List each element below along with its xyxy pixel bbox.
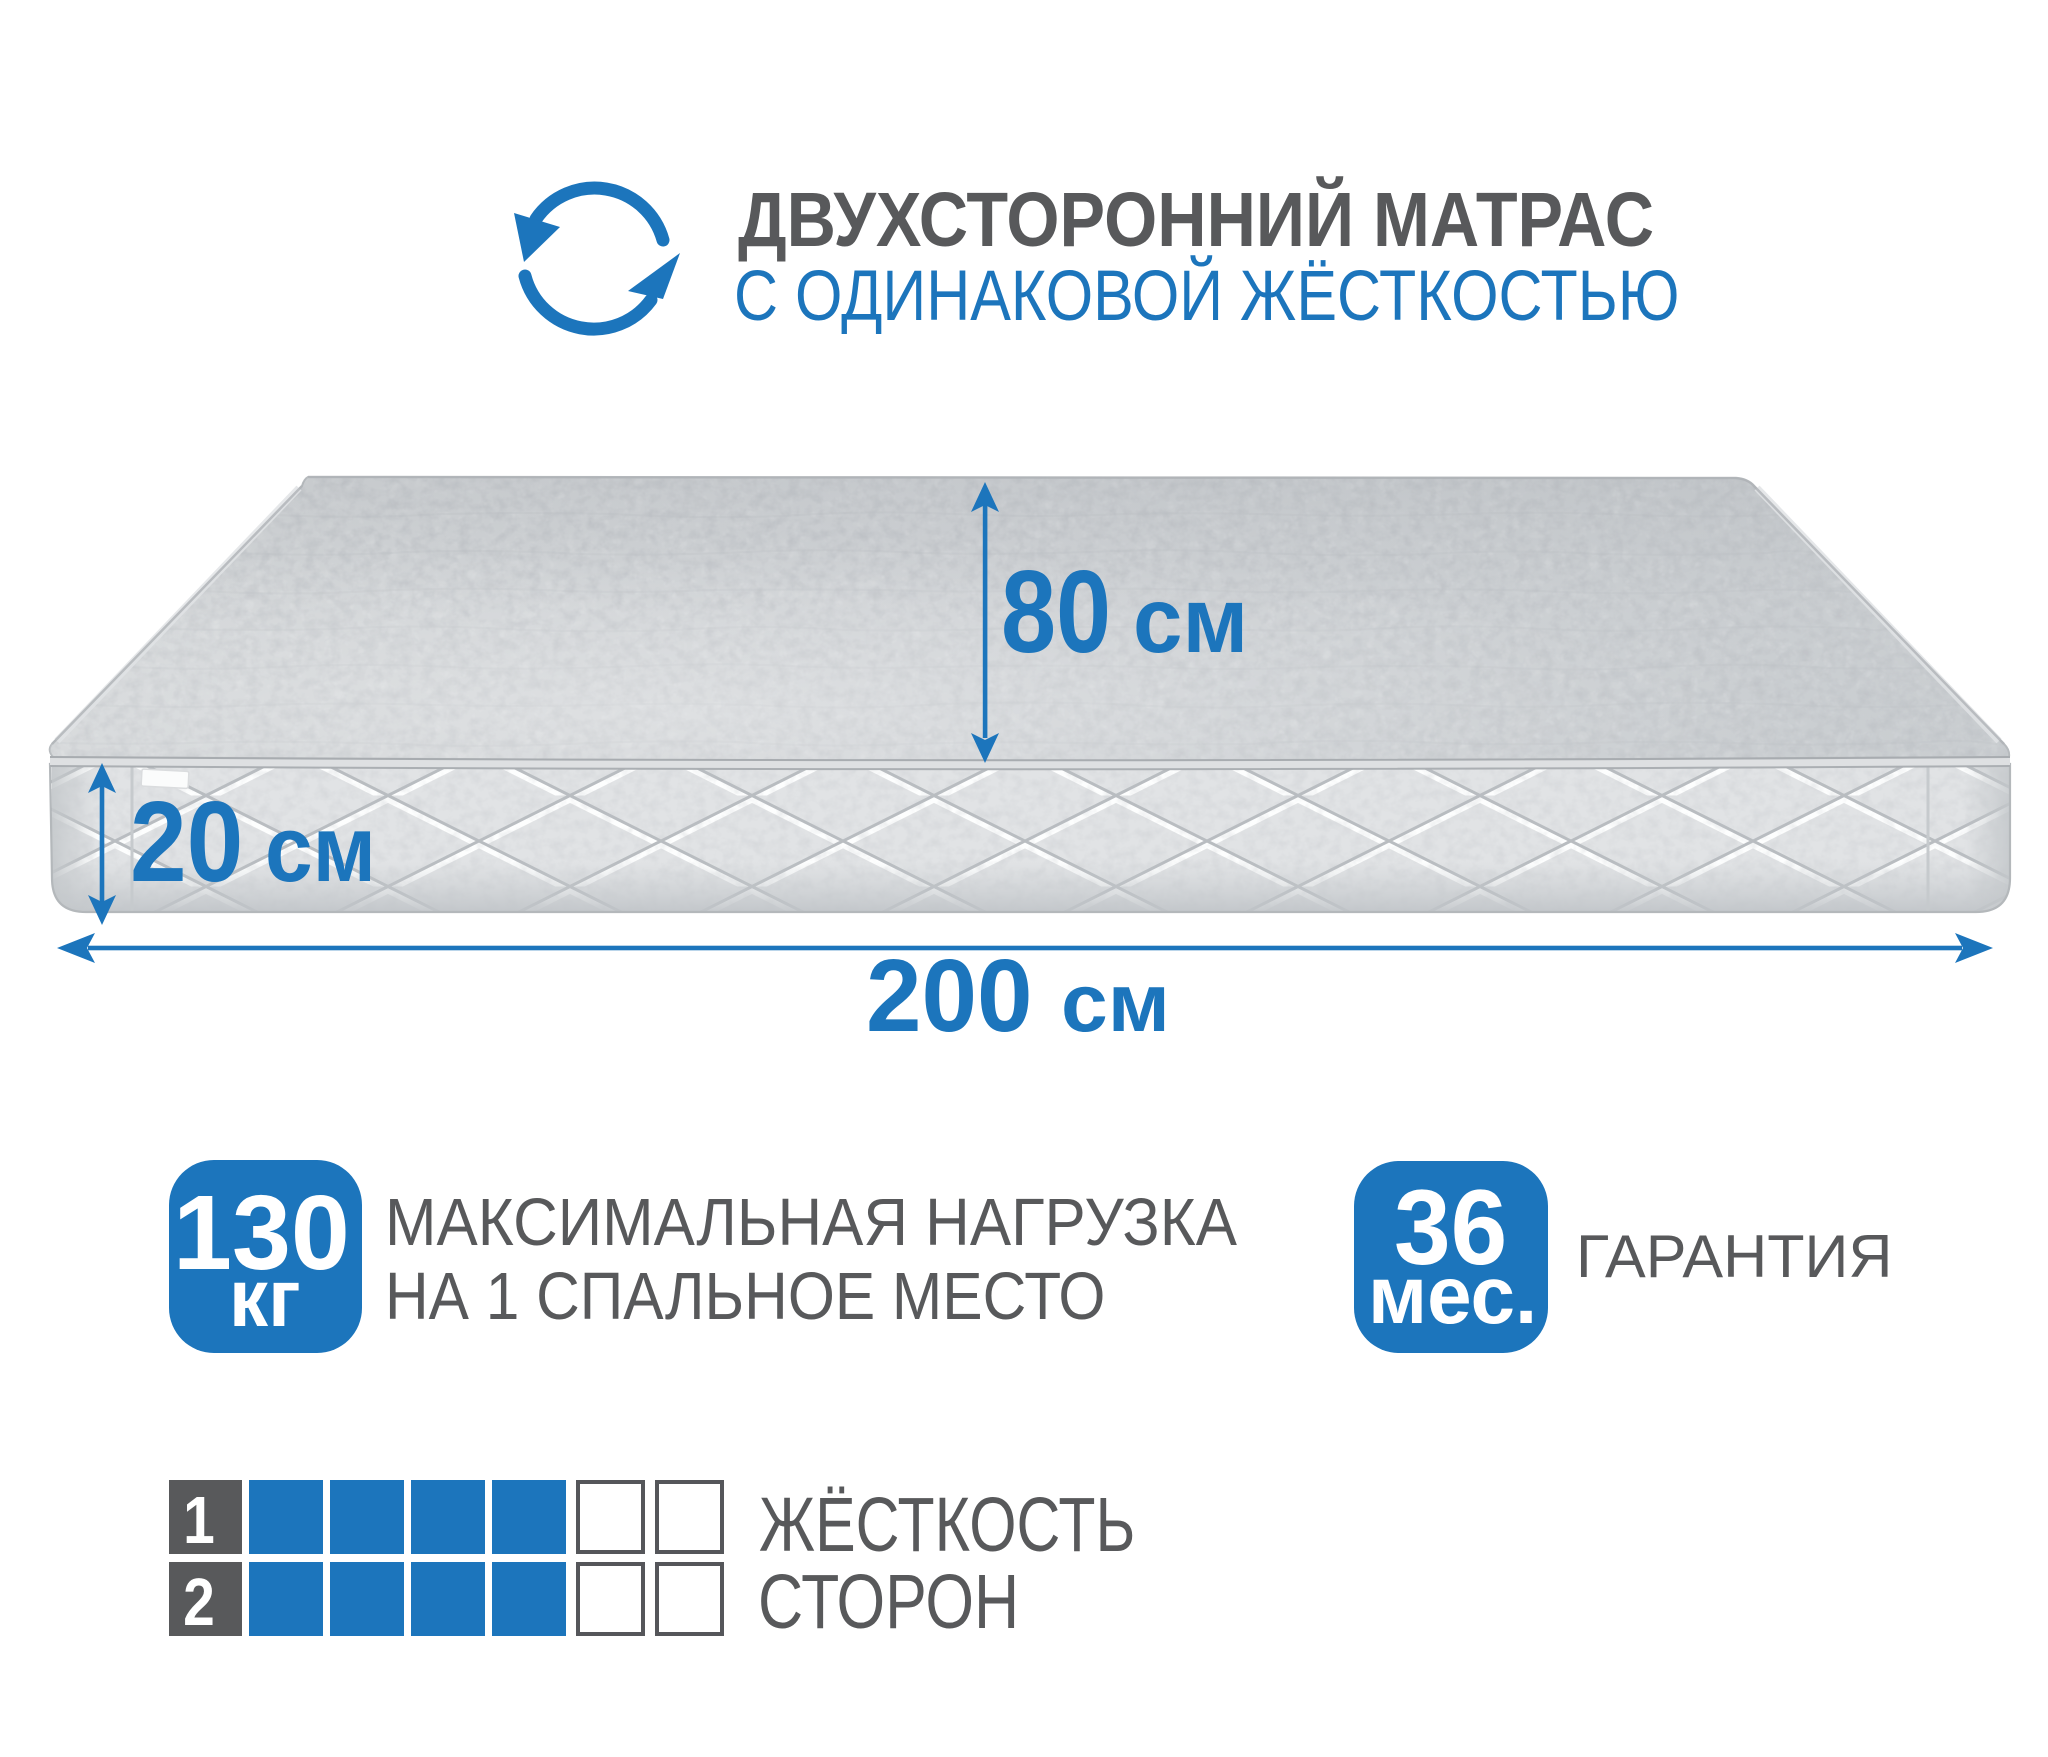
svg-text:СТОРОН: СТОРОН — [758, 1559, 1019, 1645]
svg-text:НА 1 СПАЛЬНОЕ МЕСТО: НА 1 СПАЛЬНОЕ МЕСТО — [385, 1259, 1105, 1333]
svg-text:мес.: мес. — [1368, 1250, 1537, 1341]
svg-text:ДВУХСТОРОННИЙ МАТРАС: ДВУХСТОРОННИЙ МАТРАС — [738, 176, 1654, 263]
svg-text:ЖЁСТКОСТЬ: ЖЁСТКОСТЬ — [759, 1481, 1135, 1568]
svg-text:ГАРАНТИЯ: ГАРАНТИЯ — [1576, 1222, 1893, 1289]
svg-text:см: см — [1133, 569, 1248, 672]
svg-text:20: 20 — [130, 778, 243, 906]
svg-text:МАКСИМАЛЬНАЯ НАГРУЗКА: МАКСИМАЛЬНАЯ НАГРУЗКА — [385, 1185, 1237, 1260]
svg-text:80: 80 — [1001, 546, 1111, 677]
svg-text:200: 200 — [866, 939, 1033, 1054]
svg-text:1: 1 — [183, 1484, 215, 1558]
svg-text:кг: кг — [229, 1251, 301, 1343]
svg-text:см: см — [265, 797, 376, 902]
svg-text:см: см — [1061, 955, 1170, 1048]
svg-text:С ОДИНАКОВОЙ ЖЁСТКОСТЬЮ: С ОДИНАКОВОЙ ЖЁСТКОСТЬЮ — [734, 255, 1679, 337]
svg-text:2: 2 — [183, 1566, 215, 1640]
